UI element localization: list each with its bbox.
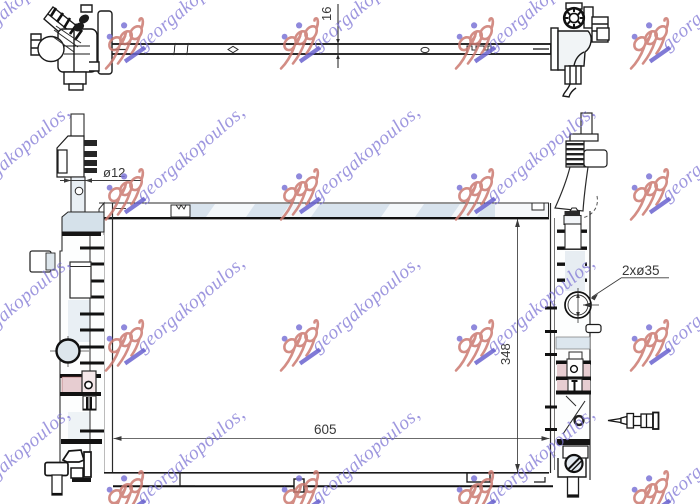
svg-text:605: 605 bbox=[314, 422, 337, 437]
svg-text:2xø35: 2xø35 bbox=[622, 263, 660, 278]
